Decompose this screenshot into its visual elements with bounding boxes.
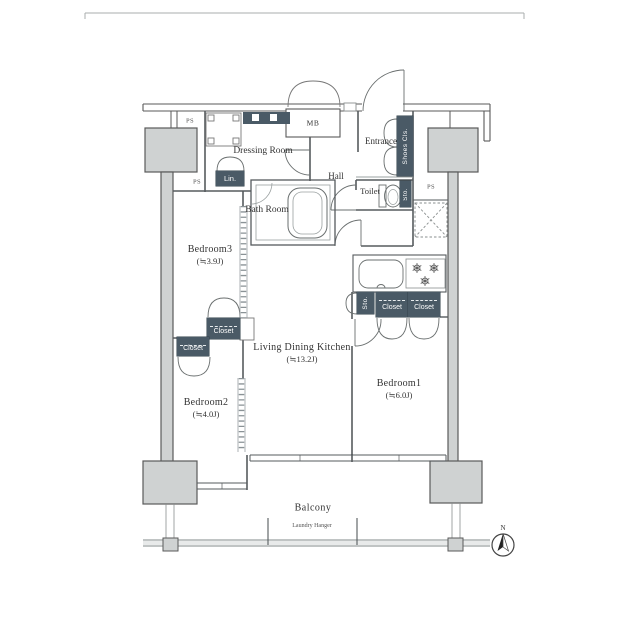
closet-label: Closet (414, 304, 434, 311)
shoes-closet-label: Shoes Cls. (402, 128, 409, 164)
entrance-door-arc (363, 70, 404, 111)
room-label-toilet: Toilet (360, 186, 380, 196)
closet-badge: Closet (177, 337, 209, 356)
shoes-closet-doors (384, 119, 397, 175)
washing-machine-pan (206, 113, 241, 146)
toilet-fixture (379, 185, 402, 207)
bearing-wall-right (448, 172, 458, 462)
room-size: (≒4.0J) (161, 409, 251, 420)
ps-label: PS (427, 184, 435, 191)
storage-label: Sto. (362, 296, 369, 310)
room-label-bath: Bath Room (245, 204, 289, 216)
ps-label: PS (193, 179, 201, 186)
ps-label: PS (186, 118, 194, 125)
kitchen-storage-badge: Sto. (357, 292, 374, 314)
closet-label: Closet (183, 345, 203, 352)
floor-plan-drawing (0, 0, 628, 640)
closet-badge: Closet (207, 318, 240, 339)
refrigerator-space (415, 203, 447, 237)
linen-closet-doors (217, 157, 244, 171)
room-label-ldk: Living Dining Kitchen (≒13.2J) (232, 342, 372, 365)
column (430, 461, 482, 503)
compass-north-label: N (500, 524, 505, 532)
corridor-line (85, 13, 524, 19)
room-label-hall: Hall (328, 171, 344, 181)
storage-label: Sto. (403, 188, 409, 201)
column (145, 128, 197, 172)
room-label-entrance: Entrance (365, 136, 397, 146)
room-name: Bedroom3 (165, 244, 255, 255)
room-label-bedroom2: Bedroom2 (≒4.0J) (161, 397, 251, 420)
closet-badge: Closet (376, 292, 408, 317)
meter-box (286, 81, 356, 137)
linen-closet-badge: Lin. (216, 171, 244, 186)
column (428, 128, 478, 172)
room-name: Bedroom2 (161, 397, 251, 408)
room-size: (≒6.0J) (354, 390, 444, 401)
room-name: Bedroom1 (354, 378, 444, 389)
window (197, 454, 446, 490)
room-size: (≒3.9J) (165, 256, 255, 267)
closet-badge: Closet (408, 292, 440, 317)
floor-plan: PS PS PS MB Dressing Room Bath Room Hall… (0, 0, 628, 640)
hall-ldk-door-arc (335, 220, 361, 246)
closet-doors (377, 318, 439, 339)
toilet-storage-badge: Sto. (400, 181, 411, 207)
room-label-dressing: Dressing Room (233, 145, 293, 157)
closet-label: Closet (214, 328, 234, 335)
vanity-counter (243, 112, 290, 124)
meter-box-label: MB (307, 119, 320, 128)
bathtub (288, 188, 327, 238)
room-label-bedroom3: Bedroom3 (≒3.9J) (165, 244, 255, 267)
linen-label: Lin. (224, 174, 236, 183)
bath-door-arc (252, 183, 272, 204)
room-label-balcony: Balcony (295, 503, 332, 514)
duct-pillar (240, 318, 254, 340)
closet-label: Closet (382, 304, 402, 311)
room-label-bedroom1: Bedroom1 (≒6.0J) (354, 378, 444, 401)
room-size: (≒13.2J) (232, 354, 372, 365)
column (143, 461, 197, 504)
shoes-closet-badge: Shoes Cls. (397, 116, 413, 176)
compass-icon (492, 534, 514, 557)
balcony-railing (143, 540, 490, 546)
room-name: Living Dining Kitchen (232, 342, 372, 353)
laundry-hanger-label: Laundry Hanger (292, 522, 332, 530)
